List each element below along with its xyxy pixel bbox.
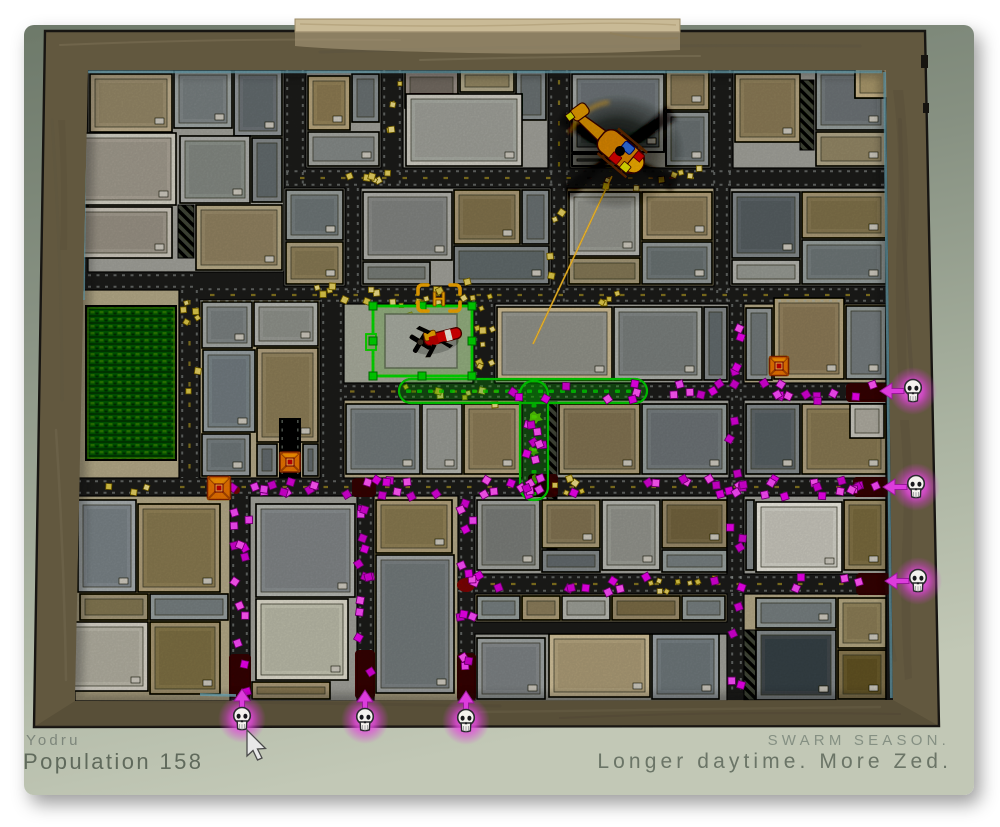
svg-text:Population 158: Population 158: [23, 749, 203, 774]
svg-text:Longer daytime. More Zed.: Longer daytime. More Zed.: [597, 750, 952, 773]
svg-text:Yodru: Yodru: [26, 732, 81, 749]
svg-text:SWARM SEASON.: SWARM SEASON.: [768, 732, 950, 749]
